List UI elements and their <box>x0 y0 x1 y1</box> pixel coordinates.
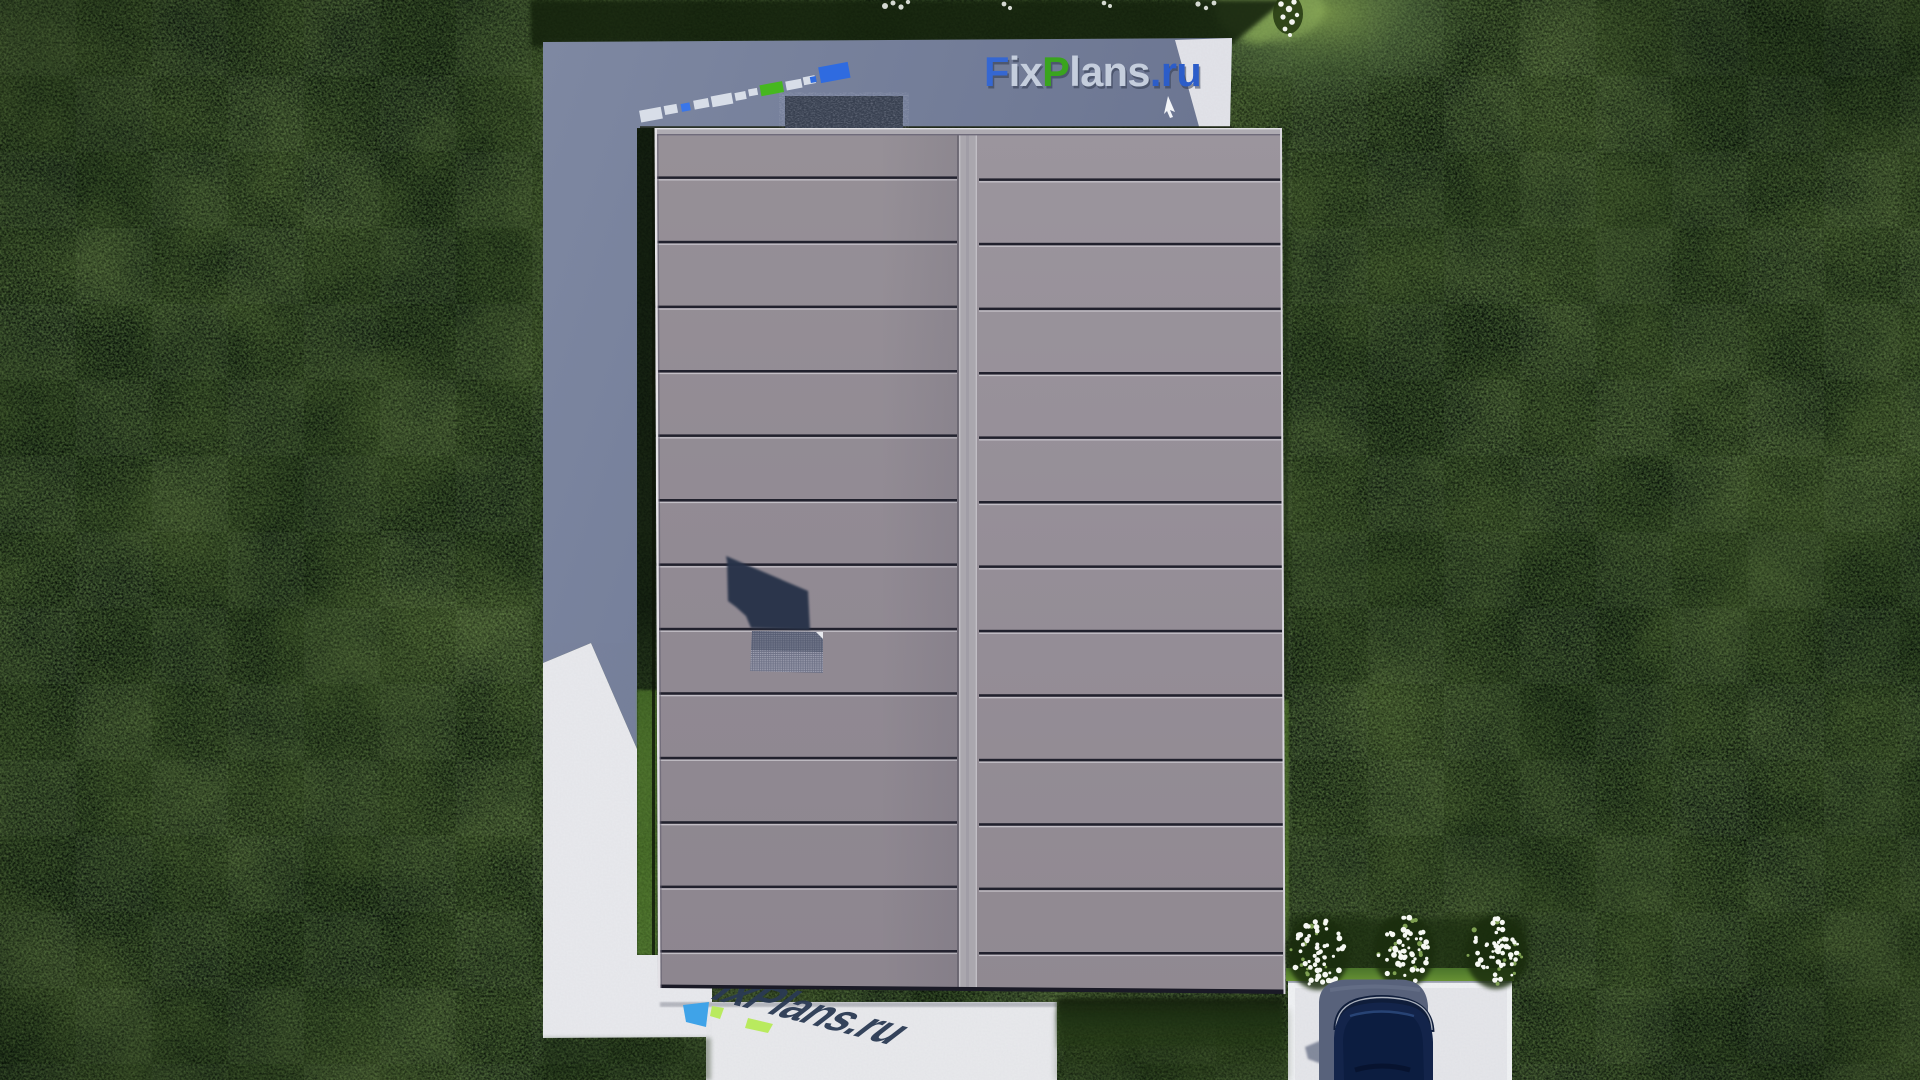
svg-text:FixPlans.ru: FixPlans.ru <box>984 48 1201 95</box>
